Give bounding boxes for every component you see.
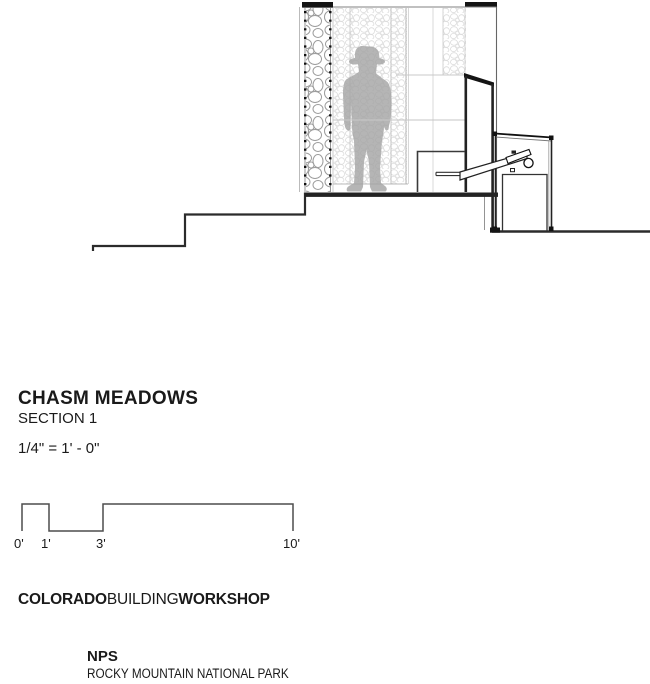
gabion-stone-wall [300,7,334,192]
studio-workshop: WORKSHOP [178,591,269,608]
right-wall [464,6,497,231]
scale-tick-10ft: 10' [283,536,300,551]
section-drawing [0,0,650,260]
sheet: CHASM MEADOWS SECTION 1 1/4" = 1' - 0" 0… [0,0,650,684]
gabion-top-cap [302,2,333,8]
scale-tick-0ft: 0' [14,536,24,551]
drawing-title: CHASM MEADOWS [18,388,198,410]
scale-bar-outline [22,504,293,531]
chute-bracket-top [512,151,517,154]
right-wall-top-cap [465,2,497,7]
studio-colorado: COLORADO [18,591,107,608]
wall-cap-sloped [464,73,494,87]
chute-bracket-bottom [511,169,515,172]
floor-slab [305,193,498,197]
service-box-inner-panel [503,175,548,232]
scale-tick-1ft: 1' [41,536,51,551]
service-box [493,132,554,232]
wall-footing [490,228,500,233]
terrain-steps-line [93,193,305,252]
client-name: NPS [87,648,118,665]
scale-note: 1/4" = 1' - 0" [18,440,99,457]
studio-wordmark: COLORADOBUILDINGWORKSHOP [18,591,270,609]
graphic-scale-bar [10,497,320,533]
client-subtitle: ROCKY MOUNTAIN NATIONAL PARK [87,666,289,681]
pulley-icon [524,158,533,167]
scale-tick-3ft: 3' [96,536,106,551]
drawing-subtitle: SECTION 1 [18,410,97,427]
studio-building: BUILDING [107,591,179,608]
